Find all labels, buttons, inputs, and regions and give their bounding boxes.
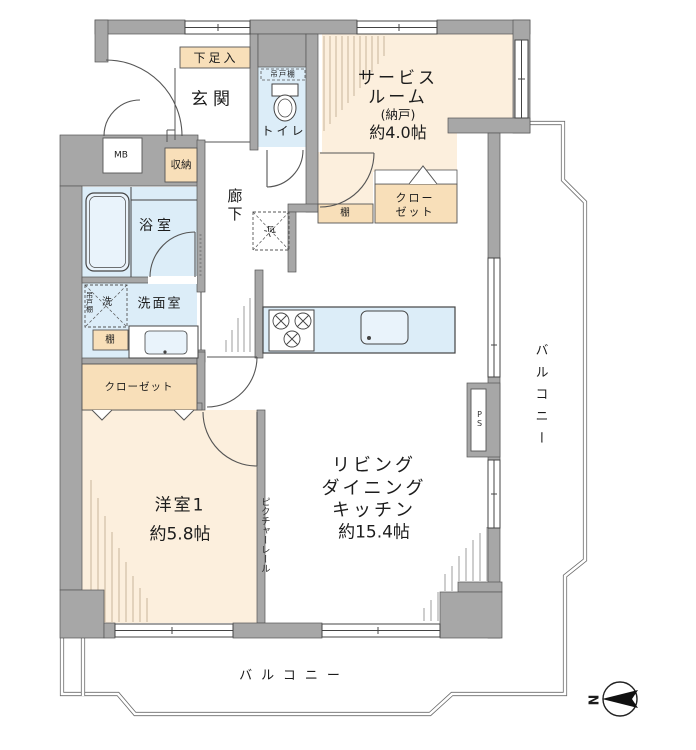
label-picture-rail: ピクチャーレール [259, 497, 269, 573]
window-entrance-top [185, 21, 250, 34]
label-bathroom: 浴室 [139, 219, 175, 233]
label-ldk-1: リビング [332, 457, 416, 475]
label-service-closet-1: クロー [396, 193, 435, 204]
label-service-room-3: (納戸) [381, 109, 416, 122]
label-bedroom-closet: クローゼット [105, 382, 174, 393]
vanity-basin [145, 331, 187, 354]
bedroom-floor [82, 410, 257, 623]
label-balcony-bottom: バルコニー [239, 670, 349, 683]
label-toilet-shelf: 吊戸棚 [270, 70, 296, 78]
label-service-room-4: 約4.0帖 [369, 125, 426, 141]
label-storage: 収納 [171, 160, 192, 171]
label-washroom-shelf: 棚 [105, 335, 115, 345]
window-ldk-east-upper [488, 258, 500, 377]
label-ldk-4: 約15.4帖 [338, 525, 410, 542]
bathtub [86, 193, 129, 271]
window-ldk-east-lower [488, 460, 500, 528]
label-ldk-3: キッチン [332, 502, 416, 520]
label-washroom-shelf-hanging: 吊戸棚 [86, 292, 93, 313]
toilet-tank [272, 84, 298, 96]
label-washroom: 洗面室 [137, 298, 182, 311]
label-ldk-2: ダイニング [322, 480, 427, 498]
label-toilet: トイレ [261, 125, 306, 137]
label-bedroom-1: 洋室1 [155, 498, 206, 515]
label-washer: 洗 [102, 298, 112, 308]
label-entrance: 玄関 [191, 92, 235, 109]
hatch-corridor [226, 298, 250, 352]
floor-plan-drawing [0, 0, 696, 750]
label-compass-north: N [586, 695, 599, 706]
label-service-room-1: サービス [358, 71, 438, 88]
toilet-door [267, 150, 303, 187]
floor-plan: 玄関 下足入 吊戸棚 トイレ サービス ルーム (納戸) 約4.0帖 MB 収納… [0, 0, 696, 750]
label-corridor: 廊下 [227, 188, 242, 224]
window-ldk-south [322, 624, 440, 637]
label-balcony-right: バルコニー [534, 343, 547, 453]
window-service-east [515, 40, 528, 118]
label-meter-box: MB [114, 152, 128, 161]
label-kitchen-shelf: 棚 [340, 208, 350, 218]
window-service-top [357, 21, 437, 34]
entrance-door [104, 60, 182, 136]
window-bedroom-south [115, 624, 233, 637]
label-service-room-2: ルーム [368, 90, 428, 107]
compass [602, 682, 638, 716]
label-pipe-space: PS [475, 410, 483, 428]
label-shoe-box: 下足入 [193, 52, 238, 64]
ldk-door [207, 357, 257, 407]
label-service-closet-2: ゼット [396, 207, 435, 218]
label-bedroom-2: 約5.8帖 [149, 527, 210, 544]
